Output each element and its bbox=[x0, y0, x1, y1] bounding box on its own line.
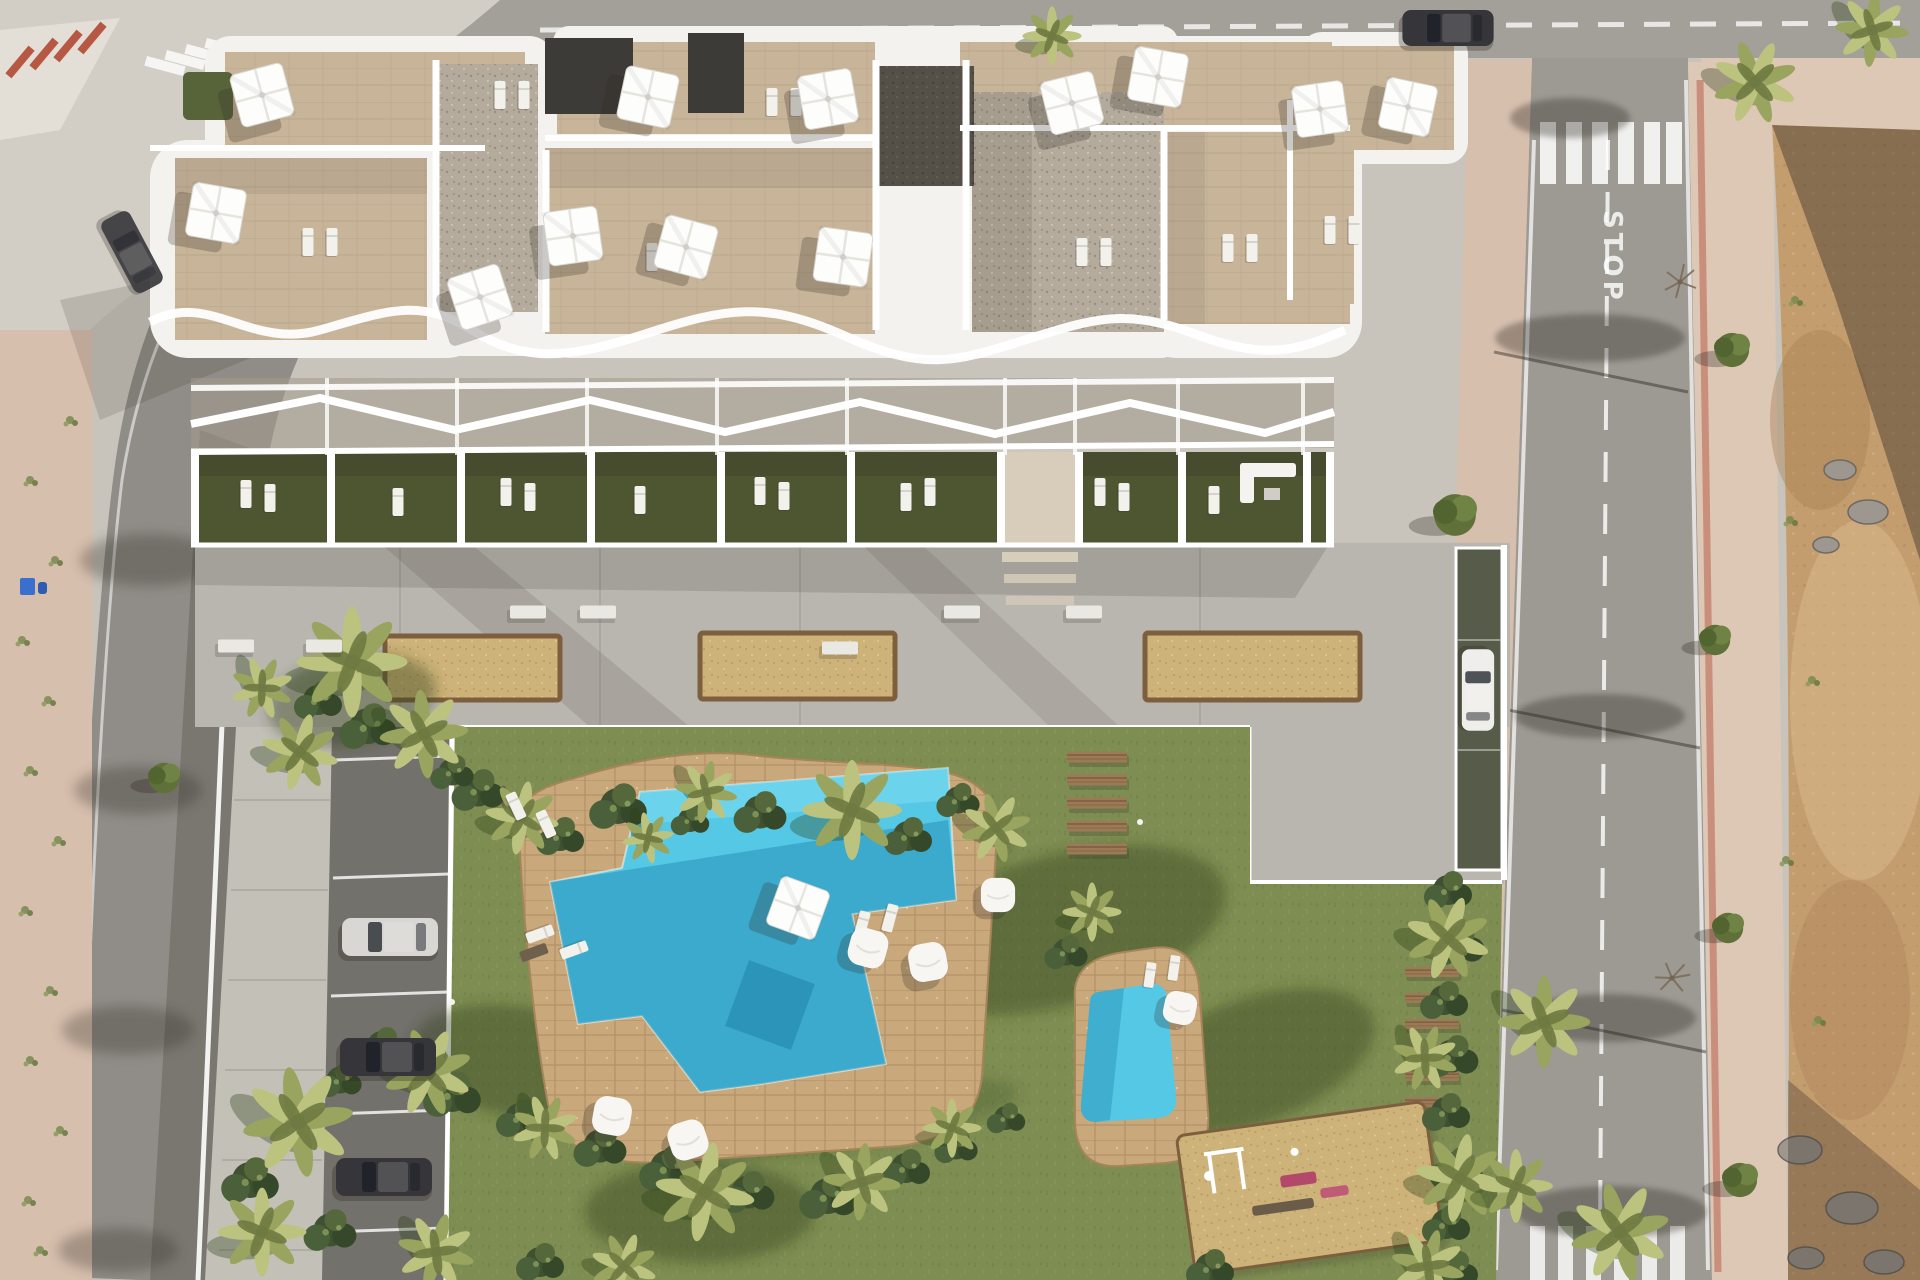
car-top-road bbox=[1399, 10, 1494, 51]
bench-2 bbox=[507, 606, 546, 624]
bench-1 bbox=[303, 640, 342, 658]
stop-road-marking: STOP bbox=[1597, 210, 1627, 304]
planter-right bbox=[1145, 633, 1360, 700]
pergola-canopy bbox=[191, 378, 1334, 455]
lounger-6 bbox=[1075, 238, 1088, 267]
lounger-3 bbox=[499, 478, 512, 507]
lounger-10 bbox=[1093, 478, 1106, 507]
lounger-2 bbox=[493, 81, 506, 110]
lounger-0 bbox=[301, 228, 314, 257]
lounger-9 bbox=[1245, 234, 1258, 263]
lounger-0 bbox=[239, 480, 252, 509]
plank-4 bbox=[1067, 844, 1129, 860]
entrance-walkway bbox=[1005, 450, 1075, 545]
plank-1 bbox=[1067, 775, 1129, 791]
lounger-3 bbox=[517, 81, 530, 110]
lounger-4 bbox=[765, 88, 778, 117]
bench-5 bbox=[1063, 606, 1102, 624]
plank-3 bbox=[1067, 821, 1129, 837]
bench-4 bbox=[941, 606, 980, 624]
lounger-7 bbox=[777, 482, 790, 511]
lounger-9 bbox=[923, 478, 936, 507]
lounger-5 bbox=[633, 486, 646, 515]
car-parked-dark-2 bbox=[332, 1158, 432, 1201]
lounger-7 bbox=[1099, 238, 1112, 267]
planter-middle bbox=[700, 633, 895, 699]
lounger-11 bbox=[1117, 483, 1130, 512]
bench-0 bbox=[215, 640, 254, 658]
car-garage-ramp bbox=[1458, 646, 1495, 731]
dark-gravel-roof bbox=[878, 66, 974, 186]
lounger-1 bbox=[325, 228, 338, 257]
lounger-2 bbox=[391, 488, 404, 517]
car-parked-dark-1 bbox=[336, 1038, 436, 1081]
lounger-4 bbox=[523, 483, 536, 512]
lounger-12 bbox=[1323, 216, 1336, 245]
car-parked-silver bbox=[338, 918, 438, 961]
lounger-1 bbox=[263, 484, 276, 513]
bench-3 bbox=[577, 606, 616, 624]
bench-6 bbox=[819, 642, 858, 660]
lounger-13 bbox=[1347, 216, 1360, 245]
sand-planters bbox=[385, 633, 1360, 700]
lounger-6 bbox=[753, 477, 766, 506]
entrance-steps bbox=[1002, 552, 1078, 605]
plank-0 bbox=[1067, 752, 1129, 768]
lounger-8 bbox=[1221, 234, 1234, 263]
aerial-site-render: STOP bbox=[0, 0, 1920, 1280]
roof-pergola-2 bbox=[688, 33, 744, 113]
lounger-12 bbox=[1207, 486, 1220, 515]
plank-2 bbox=[1067, 798, 1129, 814]
left-sidewalk bbox=[0, 330, 92, 1280]
lounger-8 bbox=[899, 483, 912, 512]
